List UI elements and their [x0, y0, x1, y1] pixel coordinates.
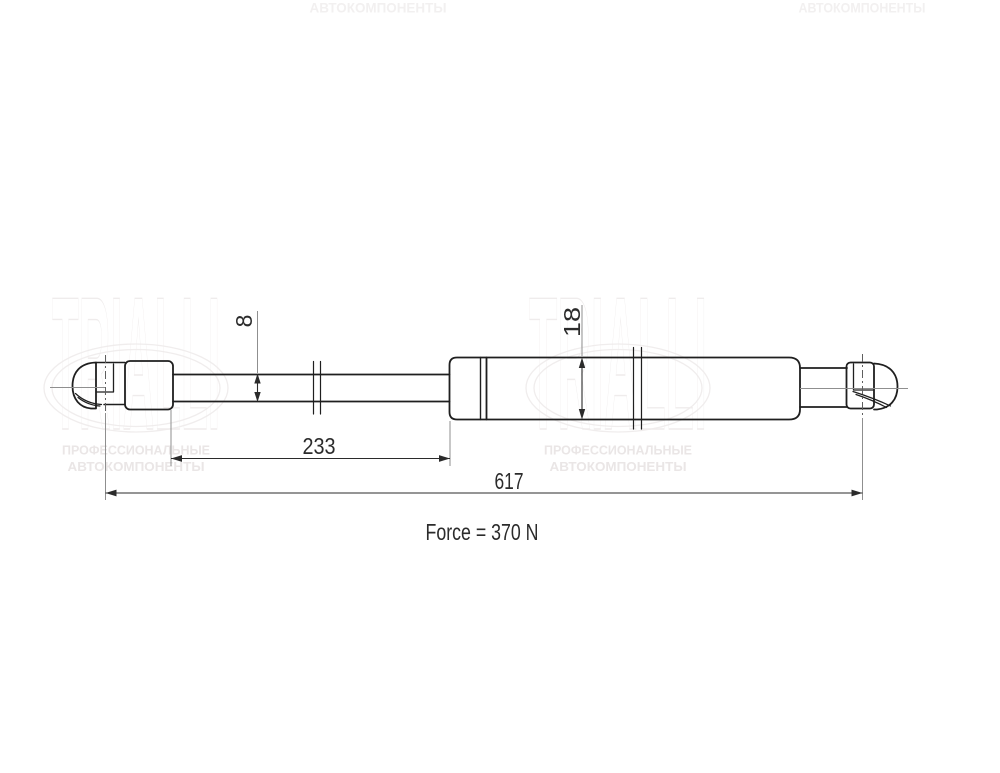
- right-fitting-block: [847, 363, 875, 409]
- drawing-canvas: АВТОКОМПОНЕНТЫ АВТОКОМПОНЕНТЫ TRIALLI ПР…: [0, 0, 1000, 773]
- dim617-arrowhead-left: [106, 490, 117, 497]
- watermark-brand-logo: TRIALLI: [529, 258, 707, 470]
- watermark-tagline-1: ПРОФЕССИОНАЛЬНЫЕ: [62, 443, 210, 458]
- rod-length-label: 233: [303, 433, 336, 459]
- dim233-arrowhead-right: [439, 455, 450, 462]
- watermark-tagline-2: АВТОКОМПОНЕНТЫ: [68, 459, 205, 474]
- right-end-fitting: [847, 363, 898, 410]
- watermark-tile-center: TRIALLI ПРОФЕССИОНАЛЬНЫЕ АВТОКОМПОНЕНТЫ: [526, 258, 710, 474]
- watermark-tagline-2: АВТОКОМПОНЕНТЫ: [550, 459, 687, 474]
- watermark-layer: АВТОКОМПОНЕНТЫ АВТОКОМПОНЕНТЫ TRIALLI ПР…: [44, 1, 926, 475]
- dim617-arrowhead-right: [852, 490, 863, 497]
- watermark-brand-logo: TRIALLI: [52, 258, 220, 470]
- watermark-tagline-1: ПРОФЕССИОНАЛЬНЫЕ: [544, 443, 692, 458]
- right-socket-lines: [854, 364, 875, 390]
- body-diameter-label: 18: [559, 307, 585, 337]
- right-socket-lip-curve-1: [853, 392, 891, 407]
- dim8-arrowhead-down: [254, 392, 260, 402]
- rod-break-marks: [314, 362, 321, 415]
- watermark-top-text-left: АВТОКОМПОНЕНТЫ: [310, 1, 447, 16]
- technical-drawing-page: АВТОКОМПОНЕНТЫ АВТОКОМПОНЕНТЫ TRIALLI ПР…: [0, 0, 1000, 773]
- watermark-tile-left: TRIALLI ПРОФЕССИОНАЛЬНЫЕ АВТОКОМПОНЕНТЫ: [44, 258, 228, 474]
- total-length-label: 617: [495, 468, 524, 494]
- right-socket-lip-curve-2: [856, 395, 887, 408]
- watermark-top-text-right: АВТОКОМПОНЕНТЫ: [799, 1, 926, 16]
- rod-diameter-label: 8: [231, 315, 257, 328]
- force-label: Force = 370 N: [426, 519, 539, 545]
- right-neck-lines: [800, 368, 847, 407]
